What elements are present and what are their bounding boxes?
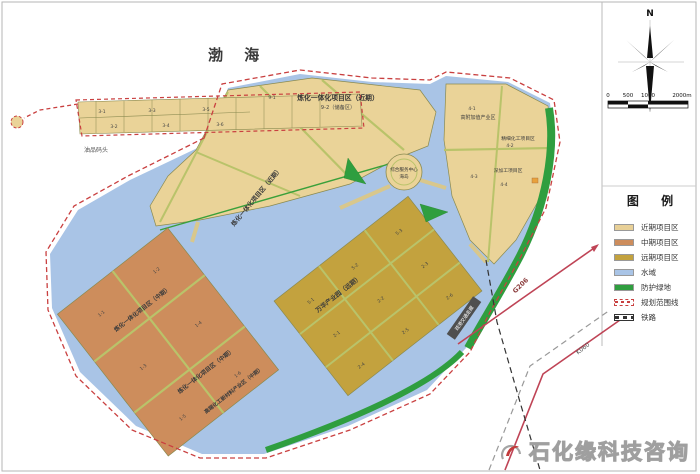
legend-item-label: 规划范围线	[641, 297, 679, 308]
zone-label-deep-process: 深加工项目区	[494, 167, 523, 174]
watermark-logo-icon	[499, 439, 523, 463]
legend-swatch-boundary-line	[614, 299, 634, 306]
parcel-code: 3-4	[162, 123, 169, 129]
parcel-code: 3-3	[148, 108, 155, 114]
watermark-text: 石化缘科技咨询	[529, 436, 690, 466]
planning-map-page: 1-1 1-2 1-3 1-4 1-5 1-6 炼化一体化项目区（中期） 炼化一…	[0, 0, 700, 474]
zone-label-highvalue: 高附加值产业区	[460, 114, 495, 121]
legend-item-far-term: 远期项目区	[614, 253, 696, 261]
legend-items: 近期项目区 中期项目区 远期项目区 水域 防护绿地 规划范围线 铁路	[604, 223, 696, 321]
legend: 图 例 近期项目区 中期项目区 远期项目区 水域 防护绿地 规划范围线 铁路	[604, 192, 696, 328]
zone-label-fine-chem: 精细化工项目区	[501, 135, 535, 142]
watermark: 石化缘科技咨询	[499, 436, 690, 466]
parcel-code: 3-5	[202, 107, 209, 113]
legend-item-label: 铁路	[641, 312, 656, 323]
legend-item-near-term: 近期项目区	[614, 223, 696, 231]
legend-swatch-mid-term	[614, 239, 634, 246]
map-canvas: 1-1 1-2 1-3 1-4 1-5 1-6 炼化一体化项目区（中期） 炼化一…	[0, 0, 700, 474]
legend-item-greenbelt: 防护绿地	[614, 283, 696, 291]
parcel-code: 4-3	[470, 174, 477, 180]
parcel-code: 3-2	[110, 124, 117, 130]
sea-label: 渤 海	[208, 46, 267, 64]
parcel-code: 4-1	[468, 106, 475, 112]
legend-item-label: 水域	[641, 267, 656, 278]
parcel-code: 3-1	[98, 109, 105, 115]
zone-label-service-center: 综合服务中心	[390, 166, 418, 173]
parcel-code: 3-6	[216, 122, 223, 128]
legend-item-label: 近期项目区	[641, 222, 679, 233]
zone-label-service-center-sub: 海岛	[399, 173, 409, 180]
parcel-code: 4-2	[506, 143, 513, 149]
legend-item-mid-term: 中期项目区	[614, 238, 696, 246]
harbor-label: 油品码头	[84, 146, 108, 154]
service-center-roundabout: 综合服务中心 海岛	[386, 154, 422, 190]
legend-swatch-far-term	[614, 254, 634, 261]
legend-swatch-railway	[614, 314, 634, 321]
legend-item-label: 远期项目区	[641, 252, 679, 263]
parcel-code: 9-1	[268, 95, 275, 101]
legend-swatch-water	[614, 269, 634, 276]
zone-label-near-term-sub: 9-2（储备区）	[321, 103, 355, 111]
scale-tick: 0	[606, 93, 610, 99]
legend-item-label: 防护绿地	[641, 282, 671, 293]
legend-item-railway: 铁路	[614, 313, 696, 321]
legend-title: 图 例	[604, 192, 696, 209]
scale-tick: 1000	[641, 93, 655, 99]
legend-swatch-greenbelt	[614, 284, 634, 291]
zone-label-near-term-title: 炼化一体化项目区（近期）	[297, 93, 379, 102]
scale-tick: 2000m	[672, 93, 691, 99]
legend-item-water: 水域	[614, 268, 696, 276]
legend-swatch-near-term	[614, 224, 634, 231]
scale-tick: 500	[623, 93, 634, 99]
north-label: N	[646, 9, 654, 19]
legend-item-boundary: 规划范围线	[614, 298, 696, 306]
legend-item-label: 中期项目区	[641, 237, 679, 248]
parcel-code: 4-4	[500, 182, 507, 188]
